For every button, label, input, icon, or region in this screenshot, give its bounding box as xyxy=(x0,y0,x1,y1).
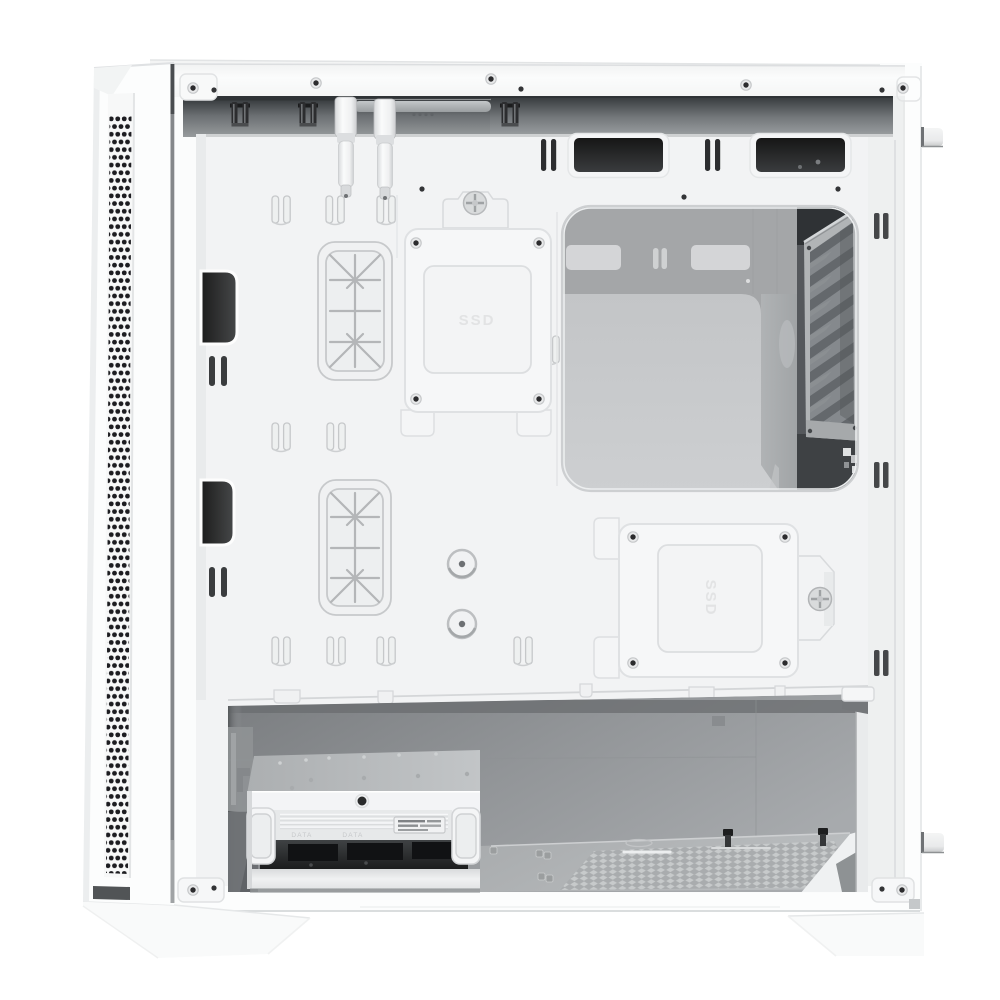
svg-text:SSD: SSD xyxy=(459,312,496,329)
svg-text:DATA: DATA xyxy=(342,832,363,839)
svg-text:SSD: SSD xyxy=(702,580,719,617)
svg-text:DATA: DATA xyxy=(291,832,312,839)
